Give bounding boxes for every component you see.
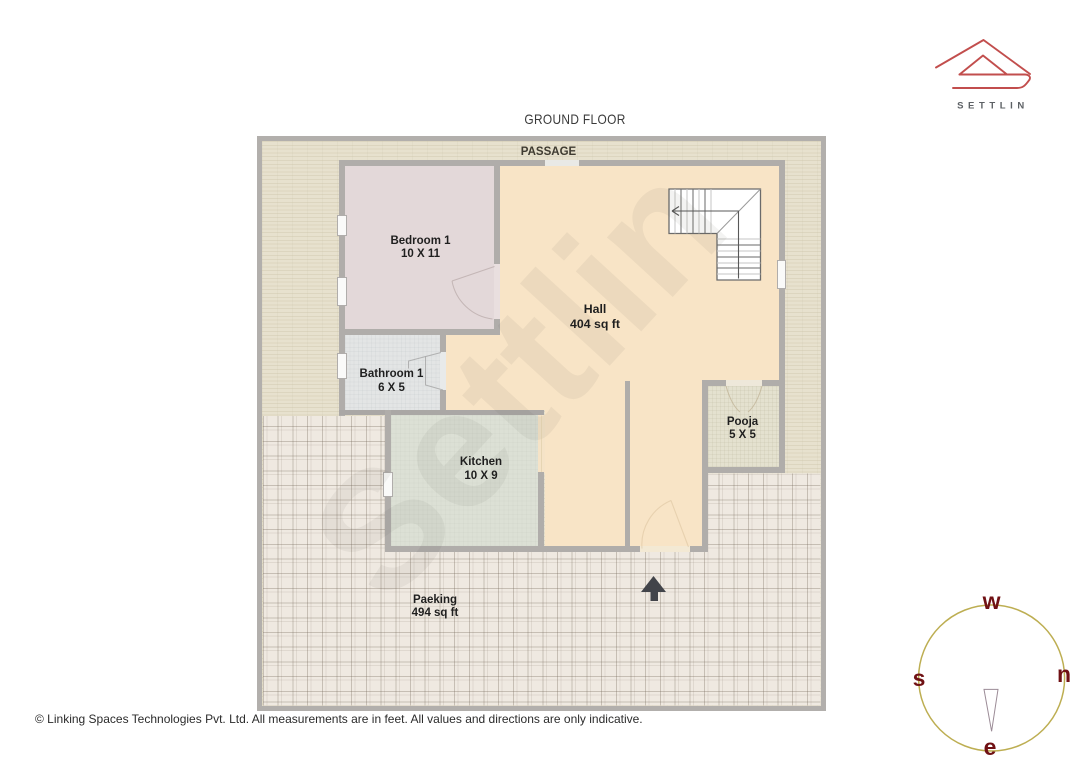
svg-text:w: w	[982, 588, 1001, 614]
svg-text:SETTLIN: SETTLIN	[957, 101, 1029, 112]
svg-text:n: n	[1057, 661, 1071, 687]
svg-text:s: s	[913, 665, 926, 691]
svg-text:e: e	[984, 734, 997, 760]
